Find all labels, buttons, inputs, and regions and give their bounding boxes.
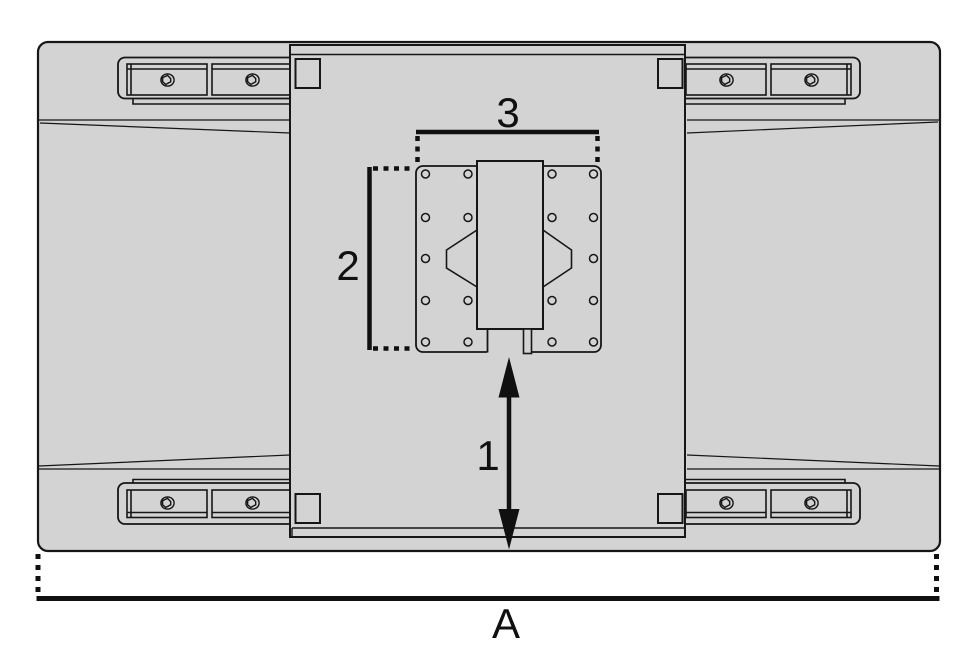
dimension-3-label: 3 xyxy=(496,89,519,136)
diagram-canvas: 3 2 1 A xyxy=(0,0,980,654)
stand-column xyxy=(477,161,543,356)
dimension-1-label: 1 xyxy=(476,432,499,479)
notch-opening xyxy=(487,348,524,356)
tv-rear-diagram: 3 2 1 A xyxy=(0,0,980,654)
dimension-a-label: A xyxy=(492,600,520,647)
handle-top-left xyxy=(118,58,310,105)
handle-bottom-left xyxy=(118,480,310,525)
handle-top-right xyxy=(668,58,860,105)
handle-bottom-right xyxy=(668,480,860,525)
notch-tab xyxy=(524,329,532,354)
column-cover xyxy=(477,161,543,329)
dimension-a-extension-dashes xyxy=(38,554,937,596)
dimension-a: A xyxy=(37,554,940,647)
dimension-2-label: 2 xyxy=(336,242,359,289)
